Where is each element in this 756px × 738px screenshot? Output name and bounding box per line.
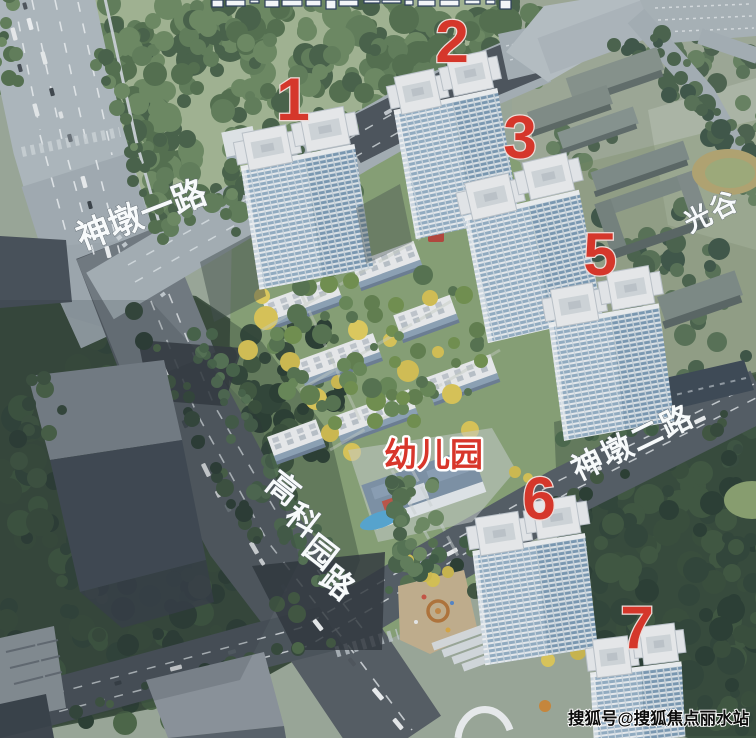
- svg-text:6: 6: [522, 465, 555, 532]
- svg-text:1: 1: [276, 66, 309, 133]
- svg-text:3: 3: [503, 104, 536, 171]
- svg-text:幼儿园: 幼儿园: [384, 436, 483, 473]
- svg-text:5: 5: [583, 221, 616, 288]
- svg-text:2: 2: [435, 8, 468, 75]
- svg-text:搜狐号@搜狐焦点丽水站: 搜狐号@搜狐焦点丽水站: [568, 708, 750, 728]
- svg-text:7: 7: [620, 594, 653, 661]
